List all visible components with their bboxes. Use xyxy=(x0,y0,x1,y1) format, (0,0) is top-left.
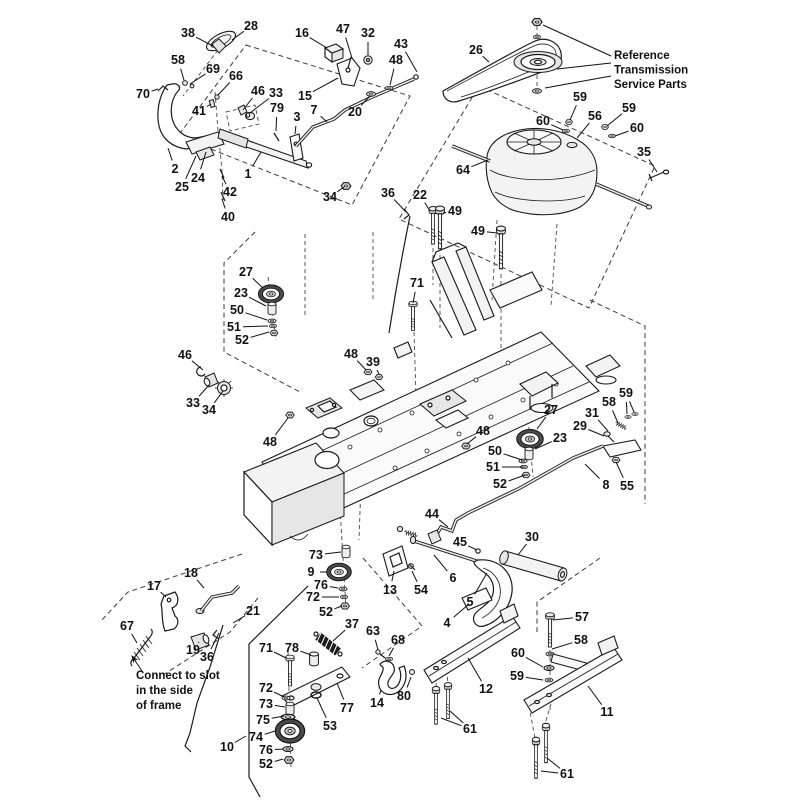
callout-67: 67 xyxy=(120,619,134,633)
callout-64: 64 xyxy=(456,163,470,177)
callout-72: 72 xyxy=(306,590,320,604)
callout-59: 59 xyxy=(619,386,633,400)
callout-60: 60 xyxy=(536,114,550,128)
callout-29: 29 xyxy=(573,419,587,433)
callout-24: 24 xyxy=(191,171,205,185)
callout-8: 8 xyxy=(603,478,610,492)
callout-52: 52 xyxy=(493,477,507,491)
callout-3: 3 xyxy=(294,110,301,124)
callout-34: 34 xyxy=(202,403,216,417)
callout-31: 31 xyxy=(585,406,599,420)
callout-49: 49 xyxy=(471,224,485,238)
callout-23: 23 xyxy=(553,431,567,445)
callout-28: 28 xyxy=(244,19,258,33)
callout-33: 33 xyxy=(186,396,200,410)
callout-58: 58 xyxy=(171,53,185,67)
callout-5: 5 xyxy=(467,595,474,609)
callout-42: 42 xyxy=(223,185,237,199)
callout-68: 68 xyxy=(391,633,405,647)
callout-45: 45 xyxy=(453,535,467,549)
leader-line xyxy=(275,749,283,750)
callout-76: 76 xyxy=(259,743,273,757)
callout-48: 48 xyxy=(389,53,403,67)
callout-44: 44 xyxy=(425,507,439,521)
callout-27: 27 xyxy=(544,403,558,417)
callout-61: 61 xyxy=(463,722,477,736)
callout-15: 15 xyxy=(298,89,312,103)
callout-25: 25 xyxy=(175,180,189,194)
callout-73: 73 xyxy=(309,548,323,562)
callout-66: 66 xyxy=(229,69,243,83)
callout-9: 9 xyxy=(308,565,315,579)
callout-19: 19 xyxy=(186,643,200,657)
callout-47: 47 xyxy=(336,22,350,36)
callout-26: 26 xyxy=(469,43,483,57)
leader-line xyxy=(243,326,268,327)
callout-54: 54 xyxy=(414,583,428,597)
callout-18: 18 xyxy=(184,566,198,580)
callout-17: 17 xyxy=(147,579,161,593)
callout-30: 30 xyxy=(525,530,539,544)
callout-1: 1 xyxy=(245,167,252,181)
callout-52: 52 xyxy=(235,333,249,347)
callout-58: 58 xyxy=(602,395,616,409)
callout-23: 23 xyxy=(234,286,248,300)
callout-71: 71 xyxy=(410,276,424,290)
callout-46: 46 xyxy=(251,84,265,98)
callout-4: 4 xyxy=(444,616,451,630)
callout-48: 48 xyxy=(344,347,358,361)
callout-10: 10 xyxy=(220,740,234,754)
callout-21: 21 xyxy=(246,604,260,618)
callout-52: 52 xyxy=(259,757,273,771)
leader-line xyxy=(276,117,277,131)
callout-61: 61 xyxy=(560,767,574,781)
callout-14: 14 xyxy=(370,696,384,710)
callout-72: 72 xyxy=(259,681,273,695)
callout-69: 69 xyxy=(206,62,220,76)
callout-39: 39 xyxy=(366,355,380,369)
callout-71: 71 xyxy=(259,641,273,655)
callout-48: 48 xyxy=(263,435,277,449)
callout-20: 20 xyxy=(348,105,362,119)
callout-32: 32 xyxy=(361,26,375,40)
callout-59: 59 xyxy=(573,90,587,104)
leader-line xyxy=(443,213,446,214)
callout-63: 63 xyxy=(366,624,380,638)
callout-34: 34 xyxy=(323,190,337,204)
callout-36: 36 xyxy=(200,650,214,664)
callout-53: 53 xyxy=(323,719,337,733)
callout-13: 13 xyxy=(383,583,397,597)
callout-73: 73 xyxy=(259,697,273,711)
callout-41: 41 xyxy=(192,104,206,118)
callout-78: 78 xyxy=(285,641,299,655)
callout-38: 38 xyxy=(181,26,195,40)
callout-7: 7 xyxy=(311,103,318,117)
callout-56: 56 xyxy=(588,109,602,123)
callout-37: 37 xyxy=(345,617,359,631)
callout-51: 51 xyxy=(227,320,241,334)
callout-6: 6 xyxy=(450,571,457,585)
callout-50: 50 xyxy=(488,444,502,458)
callout-57: 57 xyxy=(575,610,589,624)
callout-2: 2 xyxy=(172,162,179,176)
callout-75: 75 xyxy=(256,713,270,727)
callout-40: 40 xyxy=(221,210,235,224)
callout-58: 58 xyxy=(574,633,588,647)
callout-79: 79 xyxy=(270,101,284,115)
callout-77: 77 xyxy=(340,701,354,715)
callout-27: 27 xyxy=(239,265,253,279)
parts-diagram: 3828164732434858696670414633791537202252… xyxy=(0,0,800,800)
callout-60: 60 xyxy=(511,646,525,660)
callout-46: 46 xyxy=(178,348,192,362)
callout-60: 60 xyxy=(630,121,644,135)
callout-36: 36 xyxy=(381,186,395,200)
callout-55: 55 xyxy=(620,479,634,493)
callout-59: 59 xyxy=(622,101,636,115)
callout-11: 11 xyxy=(600,705,613,719)
callout-50: 50 xyxy=(230,303,244,317)
callout-74: 74 xyxy=(249,730,263,744)
callout-12: 12 xyxy=(479,682,493,696)
callout-52: 52 xyxy=(319,605,333,619)
callout-35: 35 xyxy=(637,145,651,159)
callout-59: 59 xyxy=(510,669,524,683)
callout-22: 22 xyxy=(413,188,427,202)
callout-33: 33 xyxy=(269,86,283,100)
callout-48: 48 xyxy=(476,424,490,438)
callout-16: 16 xyxy=(295,26,309,40)
callout-51: 51 xyxy=(486,460,500,474)
callout-43: 43 xyxy=(394,37,408,51)
callout-80: 80 xyxy=(397,689,411,703)
callout-49: 49 xyxy=(448,204,462,218)
leader-line xyxy=(626,402,627,414)
callout-70: 70 xyxy=(136,87,150,101)
